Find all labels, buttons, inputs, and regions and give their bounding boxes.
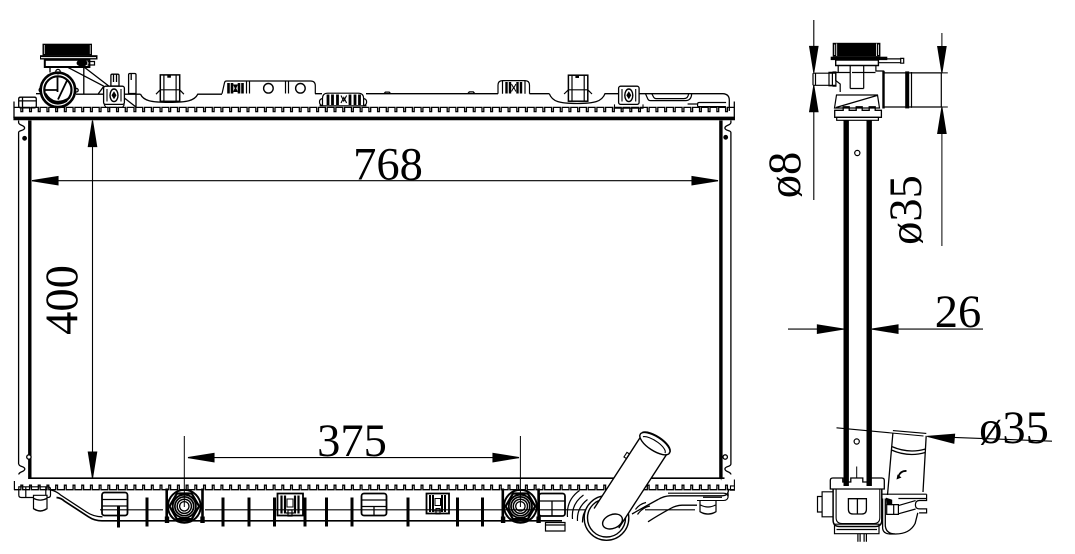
svg-text:ø35: ø35 xyxy=(881,175,932,245)
svg-text:ø8: ø8 xyxy=(760,152,811,199)
svg-text:768: 768 xyxy=(353,140,423,191)
svg-text:400: 400 xyxy=(37,265,88,335)
svg-text:ø35: ø35 xyxy=(979,403,1049,454)
svg-text:26: 26 xyxy=(935,287,982,338)
svg-text:375: 375 xyxy=(317,416,387,467)
